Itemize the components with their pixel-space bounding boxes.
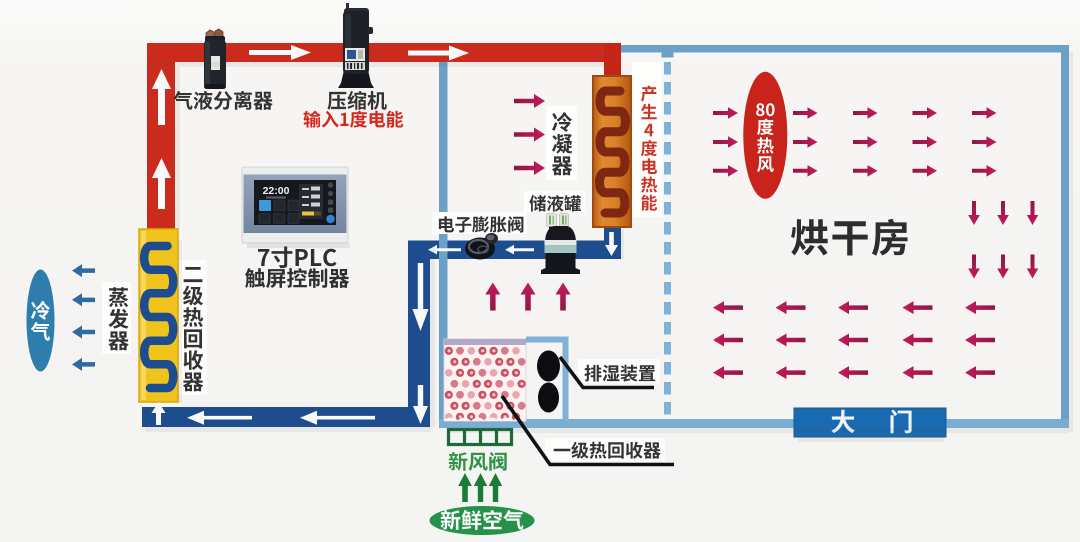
svg-text:22:00: 22:00 [263,185,290,197]
